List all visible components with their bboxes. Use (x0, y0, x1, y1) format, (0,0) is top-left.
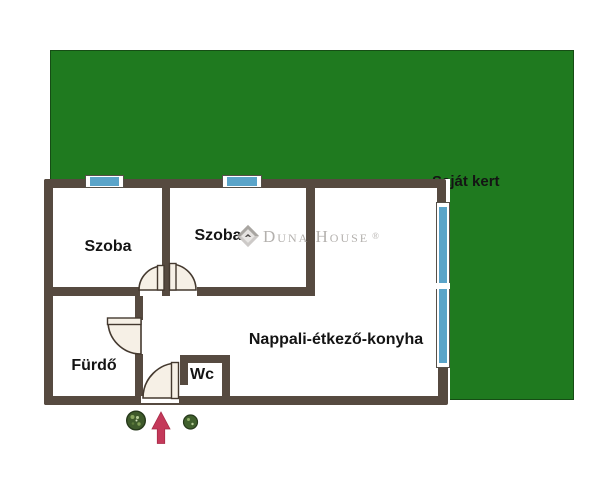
duna-house-diamond-icon (236, 224, 260, 248)
label-bathroom: Fürdő (71, 358, 116, 374)
watermark: Duna House ® (236, 224, 379, 248)
door-bathroom (108, 318, 142, 354)
plant-icon (127, 411, 146, 430)
door-bedroom2 (170, 264, 197, 291)
label-wc: Wc (190, 367, 214, 383)
watermark-brand-text: Duna House (263, 228, 369, 245)
label-bedroom2: Szoba (194, 228, 241, 244)
door-entrance (143, 363, 179, 399)
door-bedroom1 (139, 266, 164, 291)
label-bedroom1: Szoba (84, 239, 131, 255)
plant-icon (184, 415, 198, 429)
label-livingroom: Nappali-étkező-konyha (249, 332, 423, 348)
floorplan-image: Saját kert (0, 0, 610, 480)
entrance-arrow-up-icon (152, 412, 170, 444)
registered-trademark-symbol: ® (372, 231, 379, 241)
